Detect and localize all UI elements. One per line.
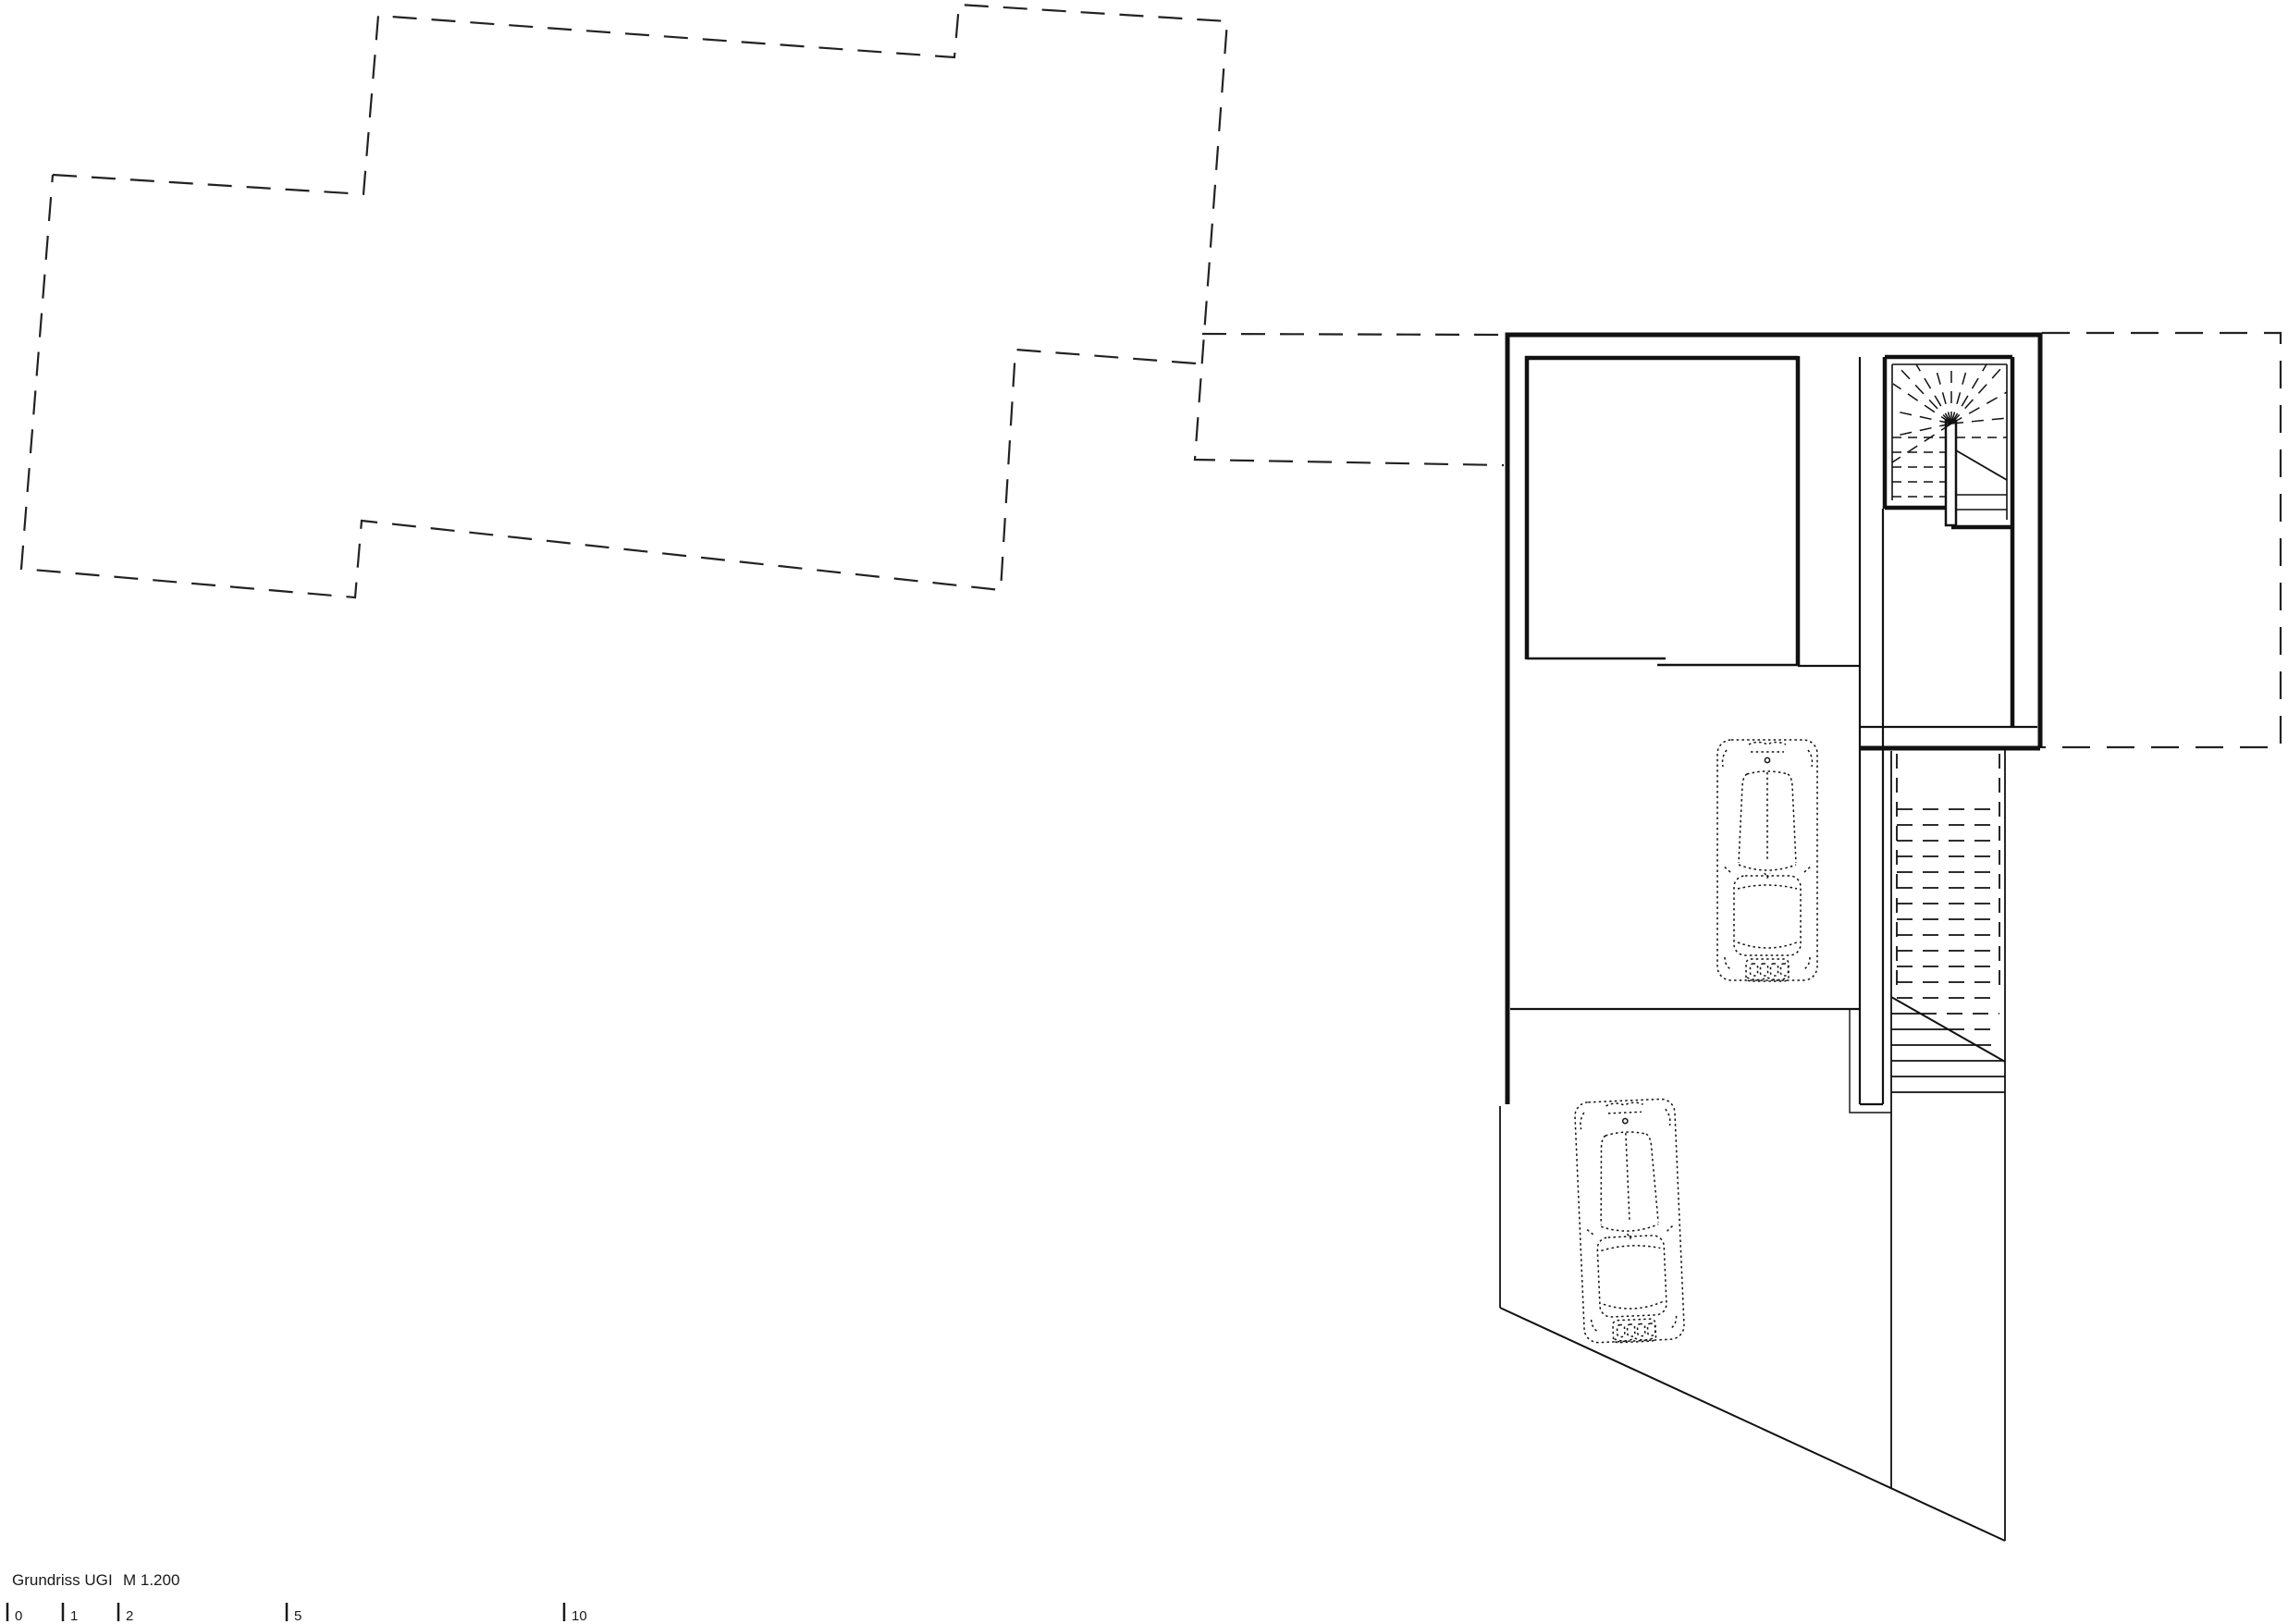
projection-link-line	[1202, 334, 1504, 335]
car-on-driveway-icon	[1574, 1099, 1684, 1344]
winder-stair-newel	[1946, 421, 1956, 525]
scale-tick-label: 10	[572, 1608, 587, 1624]
cellar-room-walls	[1525, 356, 1798, 666]
scale-tick-label: 2	[126, 1608, 133, 1624]
scale-tick-label: 1	[70, 1608, 78, 1624]
drawing-title: Grundriss UG	[12, 1571, 108, 1589]
drawing-scale-text: M 1.200	[123, 1571, 179, 1589]
scale-tick-label: 0	[15, 1608, 22, 1624]
garage-walls	[1510, 666, 1860, 1009]
car-in-garage-icon	[1717, 740, 1817, 981]
exterior-stair	[1891, 748, 2005, 1541]
terrace-projection-outline	[2042, 333, 2281, 747]
outer-wall	[1507, 335, 2040, 1104]
projection-main-outline	[53, 5, 1504, 465]
title-block: Grundriss UG I M 1.200	[12, 1571, 179, 1589]
stair-pier-wall	[1860, 357, 1883, 1104]
floor-plan-sheet: Grundriss UG I M 1.200 0 1 2 5 10	[0, 0, 2288, 1624]
scale-bar: 0 1 2 5 10	[7, 1603, 587, 1624]
projection-lower-wing-outline	[21, 175, 1196, 597]
garage-threshold-step	[1850, 1009, 1891, 1113]
basement-outer-walls	[1507, 335, 2040, 1104]
driveway-edges	[1500, 1106, 2005, 1541]
scale-tick-label: 5	[294, 1608, 301, 1624]
title-separator: I	[108, 1571, 113, 1589]
upper-floor-projection-outline	[21, 5, 1504, 597]
floor-plan-drawing: Grundriss UG I M 1.200 0 1 2 5 10	[0, 0, 2288, 1624]
driveway-slope-edge	[1500, 1308, 2005, 1541]
